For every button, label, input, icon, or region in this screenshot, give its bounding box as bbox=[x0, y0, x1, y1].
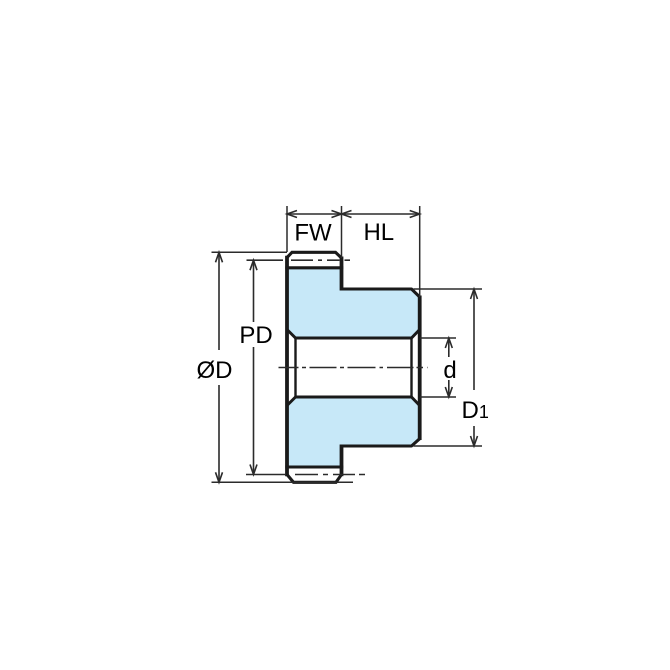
svg-text:ØD: ØD bbox=[197, 357, 233, 384]
svg-text:FW: FW bbox=[294, 220, 332, 247]
svg-text:D1: D1 bbox=[462, 397, 489, 424]
svg-text:PD: PD bbox=[239, 322, 272, 349]
svg-text:d: d bbox=[443, 357, 456, 384]
svg-text:HL: HL bbox=[363, 219, 394, 246]
